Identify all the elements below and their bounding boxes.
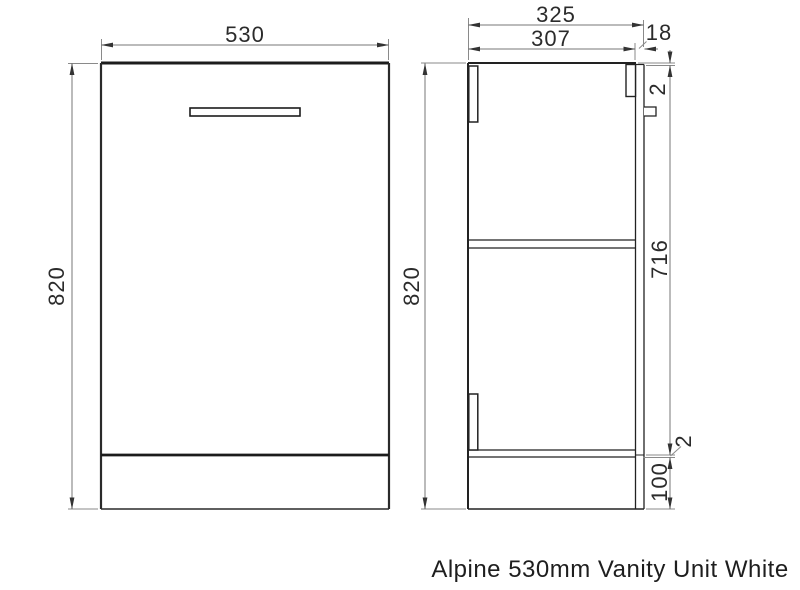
front-width-label: 530	[225, 22, 265, 47]
side-height-label: 820	[399, 266, 424, 306]
side-overall-depth-label: 325	[536, 2, 576, 27]
front-height-dimension: 820	[44, 64, 98, 510]
plinth-height-dimension: 100	[646, 458, 675, 510]
top-gap-label: 2	[645, 82, 670, 95]
technical-drawing-sheet: 530 820 325	[0, 0, 800, 590]
back-panel-thickness-label: 18	[646, 20, 672, 45]
side-internal-depth-dimension: 307	[469, 26, 636, 60]
bottom-gap-label: 2	[671, 434, 696, 447]
product-caption: Alpine 530mm Vanity Unit White	[431, 556, 788, 583]
plinth-height-label: 100	[647, 462, 672, 502]
door-height-dimension: 716	[646, 66, 675, 456]
front-width-dimension: 530	[102, 22, 389, 60]
front-view	[101, 63, 389, 509]
door-height-label: 716	[647, 239, 672, 279]
side-view	[468, 63, 656, 509]
wall-bracket-tab	[644, 107, 656, 116]
front-height-label: 820	[44, 266, 69, 306]
side-height-dimension: 820	[399, 63, 466, 509]
hanging-rail	[626, 65, 636, 97]
vanity-unit-drawing: 530 820 325	[0, 0, 800, 590]
bottom-hinge-batten	[469, 394, 478, 450]
side-internal-depth-label: 307	[531, 26, 571, 51]
door-handle	[190, 108, 300, 116]
top-hinge-batten	[469, 66, 478, 122]
